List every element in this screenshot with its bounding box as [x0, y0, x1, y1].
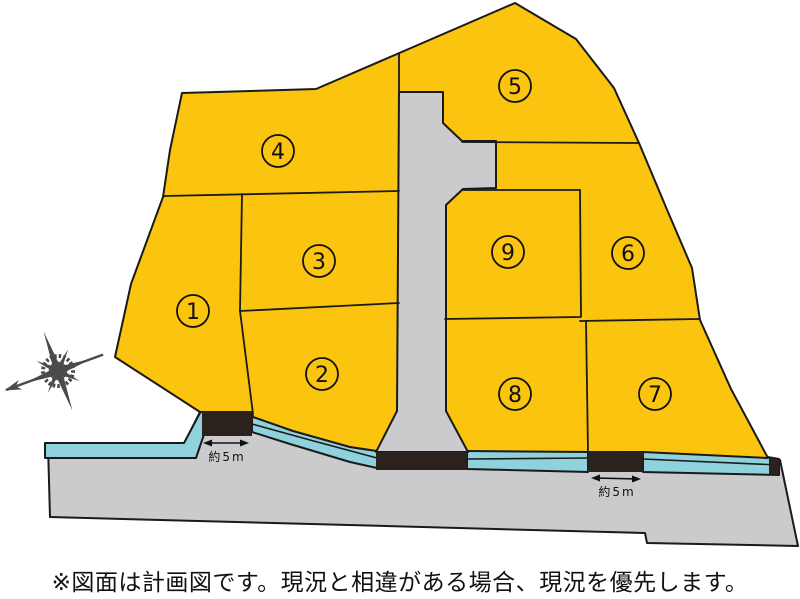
compass-rose-icon [0, 315, 117, 430]
waterway-left [45, 411, 212, 458]
svg-text:7: 7 [648, 383, 662, 408]
waterway-end-cap [769, 458, 779, 475]
site-plan: 約5m 約5m 1 [0, 0, 800, 599]
svg-text:1: 1 [186, 300, 200, 325]
svg-text:6: 6 [621, 242, 635, 267]
entrance-central-road [376, 452, 467, 470]
svg-text:3: 3 [312, 250, 326, 275]
entrance-lot1 [202, 411, 252, 436]
waterway-divider-2 [467, 458, 588, 459]
dimension-left: 約5m [203, 440, 249, 465]
svg-text:5: 5 [508, 75, 522, 100]
waterway-mid-right [467, 450, 588, 472]
svg-text:4: 4 [271, 140, 285, 165]
svg-text:9: 9 [501, 241, 515, 266]
boundary-lot5-bottom [462, 142, 639, 143]
boundary-lot9-lot6 [580, 190, 581, 317]
svg-text:8: 8 [508, 383, 522, 408]
svg-text:2: 2 [315, 363, 329, 388]
dimension-label-right: 約5m [598, 484, 635, 499]
dimension-right: 約5m [591, 475, 641, 500]
disclaimer-caption: ※図面は計画図です。現況と相違がある場合、現況を優先します。 [0, 563, 800, 597]
plan-drawing: 約5m 約5m 1 [0, 0, 800, 599]
entrance-lot7 [588, 451, 643, 472]
dimension-label-left: 約5m [208, 449, 245, 464]
